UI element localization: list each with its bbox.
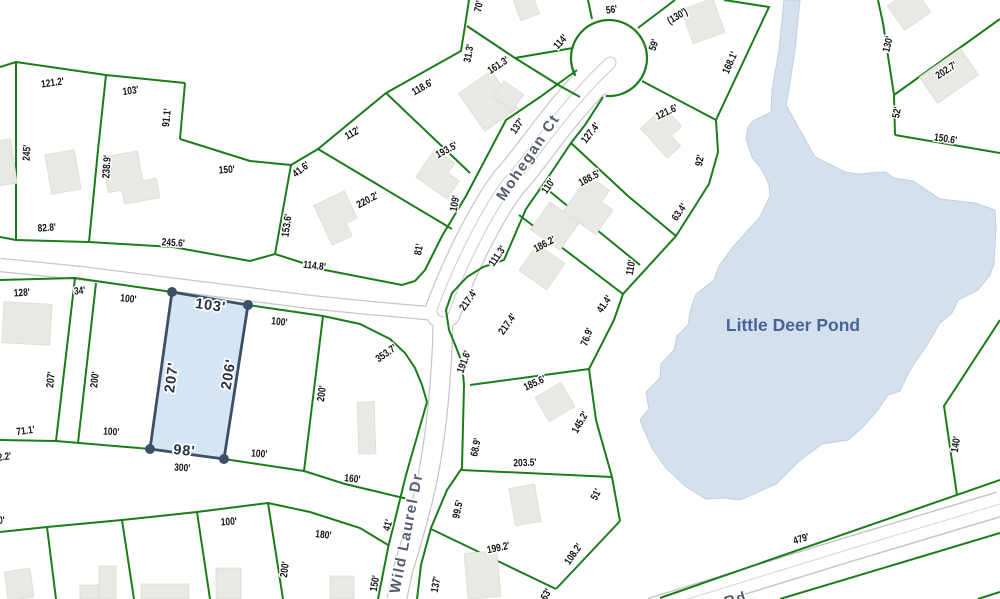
svg-text:200': 200' [88,371,102,388]
svg-text:150': 150' [218,164,235,177]
svg-text:52': 52' [890,106,904,119]
svg-text:160': 160' [344,472,361,486]
svg-text:Little Deer Pond: Little Deer Pond [726,315,860,335]
svg-text:34': 34' [73,285,86,298]
svg-text:100': 100' [251,448,268,461]
svg-text:245.6': 245.6' [161,236,185,250]
svg-text:200': 200' [315,385,329,403]
svg-text:100': 100' [271,315,288,329]
svg-text:203.5': 203.5' [513,457,536,470]
svg-text:245': 245' [21,145,34,162]
svg-text:98': 98' [173,442,196,460]
svg-text:180': 180' [315,528,332,542]
svg-text:91.1': 91.1' [160,108,174,128]
svg-text:207': 207' [44,371,58,388]
svg-text:71.1': 71.1' [16,424,36,439]
svg-text:200': 200' [278,561,292,579]
svg-text:82.8': 82.8' [37,222,56,235]
svg-text:70': 70' [472,0,486,13]
svg-text:81': 81' [412,243,426,256]
svg-text:100': 100' [103,426,120,439]
svg-text:56': 56' [605,3,618,17]
svg-text:238.9': 238.9' [100,155,114,179]
svg-text:2.2': 2.2' [0,450,12,464]
svg-text:300': 300' [174,462,191,475]
svg-text:92': 92' [693,154,707,167]
svg-text:100': 100' [120,292,137,306]
svg-text:128': 128' [13,287,30,300]
svg-text:103': 103' [122,84,140,98]
svg-text:100': 100' [0,515,5,528]
svg-text:100': 100' [220,516,237,529]
